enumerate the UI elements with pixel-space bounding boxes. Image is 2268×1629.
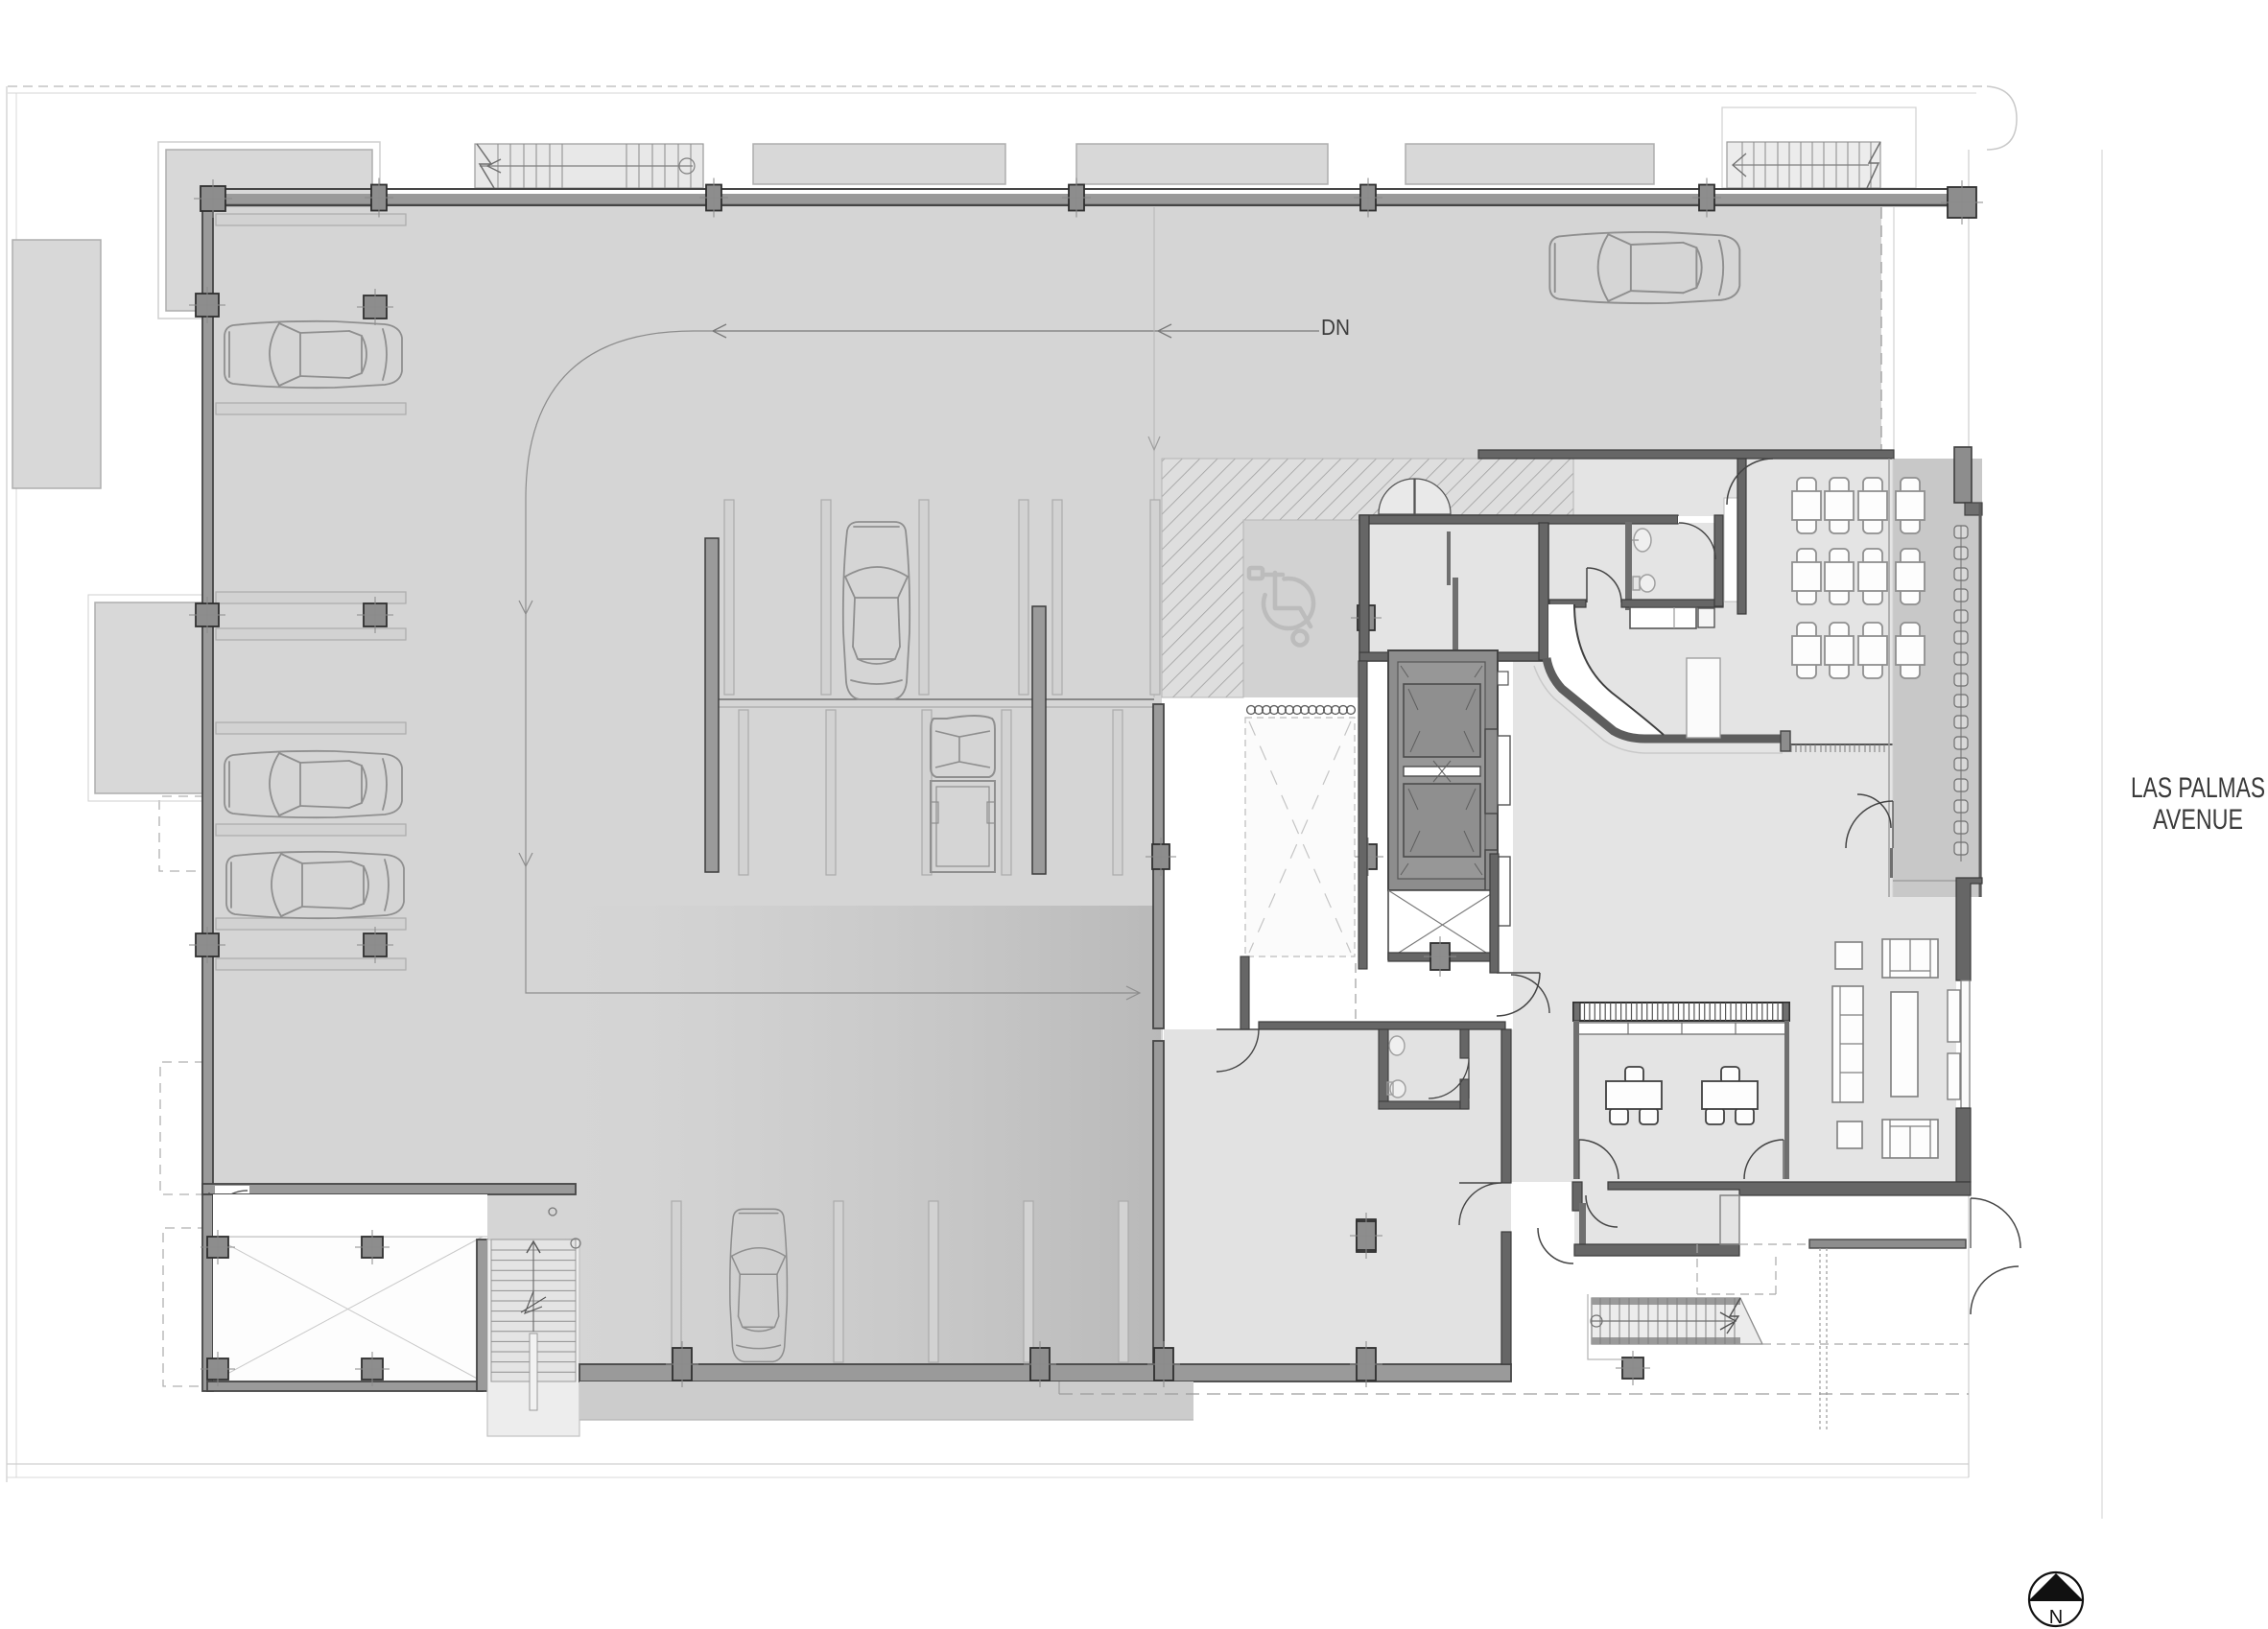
svg-text:LAS PALMAS: LAS PALMAS [2131,772,2265,804]
svg-text:N: N [2049,1607,2063,1628]
svg-text:AVENUE: AVENUE [2153,804,2243,836]
svg-text:DN: DN [1321,315,1350,340]
